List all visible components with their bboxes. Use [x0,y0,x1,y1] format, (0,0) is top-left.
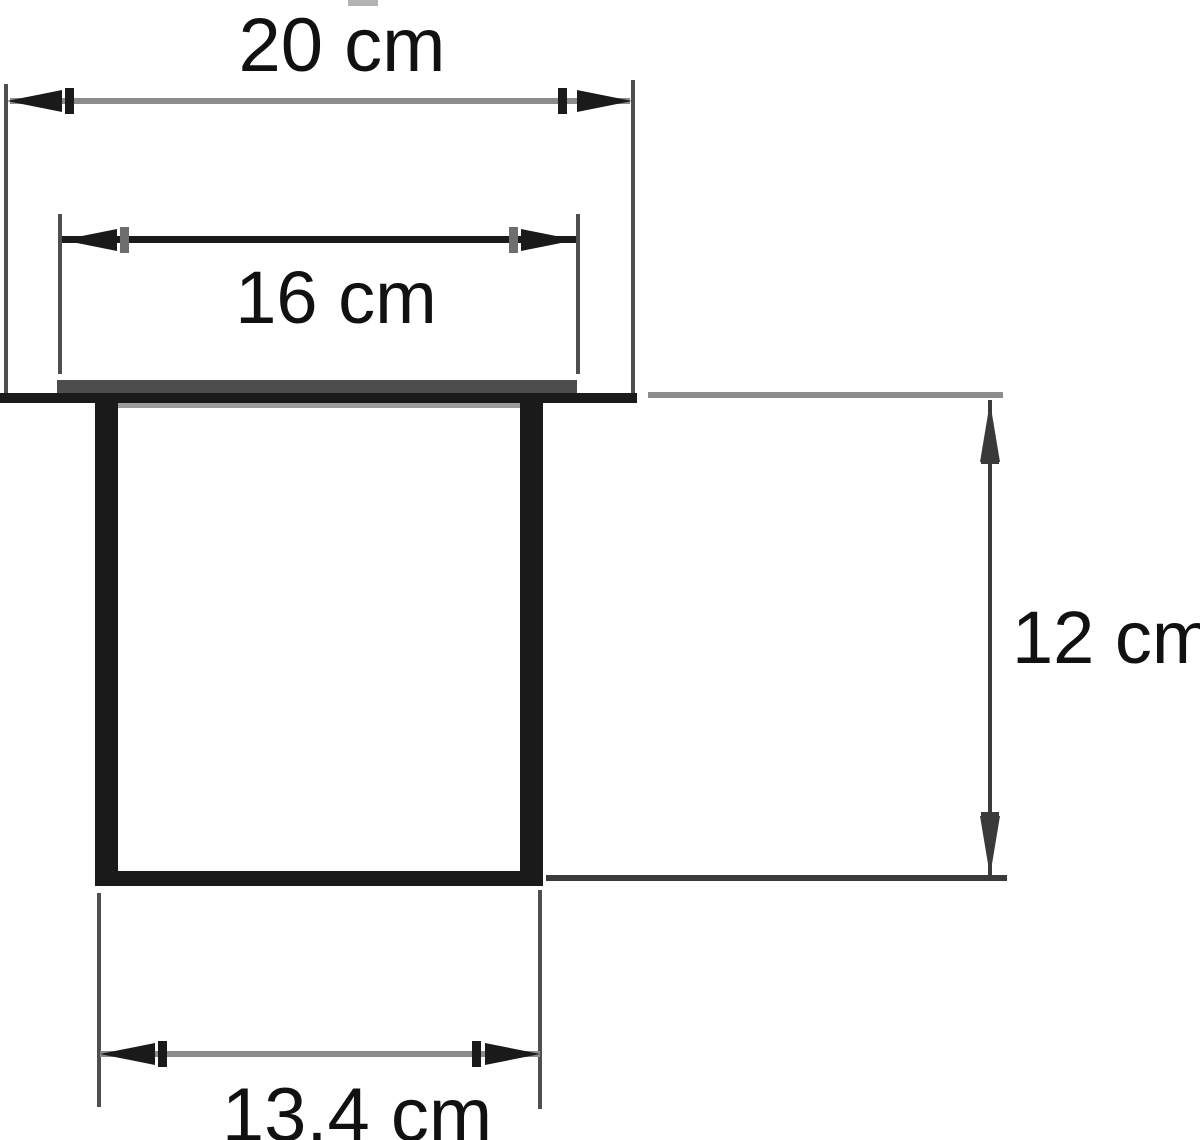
top-width-arrow-right-icon [577,90,632,112]
depth-dimension-label: 12 cm [1012,601,1200,675]
depth-arrow-down-icon [980,816,1000,876]
cup-left-wall [95,393,118,886]
bottom-width-arrow-left-tick [158,1041,167,1067]
cup-right-wall [520,393,543,886]
rim-width-arrow-right-icon [521,229,576,251]
rim-width-dimension-label: 16 cm [136,261,536,335]
top-width-extension-line-right [631,80,635,398]
bottom-reference-line-right [546,875,1007,881]
top-width-arrow-right-tick [558,88,567,114]
diagram-canvas: 20 cm 16 cm 12 cm 13.4 cm [0,0,1200,1140]
top-width-extension-line-left [4,84,8,396]
top-reference-line-right [648,392,1003,398]
rim-width-arrow-left-tick [120,227,129,253]
cup-inner-rim-line [118,403,520,408]
depth-arrow-up-icon [980,402,1000,462]
bottom-width-arrow-right-icon [485,1043,540,1065]
rim-width-dimension-line [62,236,576,243]
bottom-width-arrow-right-tick [472,1041,481,1067]
top-width-dimension-line [10,98,630,104]
cup-bottom [95,871,543,886]
top-width-dimension-label: 20 cm [142,8,542,84]
rim-width-arrow-left-icon [62,229,117,251]
top-width-arrow-left-tick [65,88,74,114]
top-width-arrow-left-icon [7,90,62,112]
depth-arrow-down-tick [981,812,999,820]
bottom-width-extension-line-left [97,893,101,1107]
cup-flange [57,380,577,393]
depth-dimension-line [988,400,992,878]
depth-arrow-up-tick [981,456,999,464]
bottom-width-arrow-left-icon [100,1043,155,1065]
rim-width-arrow-right-tick [509,227,518,253]
rim-width-extension-line-right [576,214,580,374]
bottom-width-dimension-label: 13.4 cm [157,1078,557,1140]
bottom-width-extension-line-right [538,890,542,1109]
